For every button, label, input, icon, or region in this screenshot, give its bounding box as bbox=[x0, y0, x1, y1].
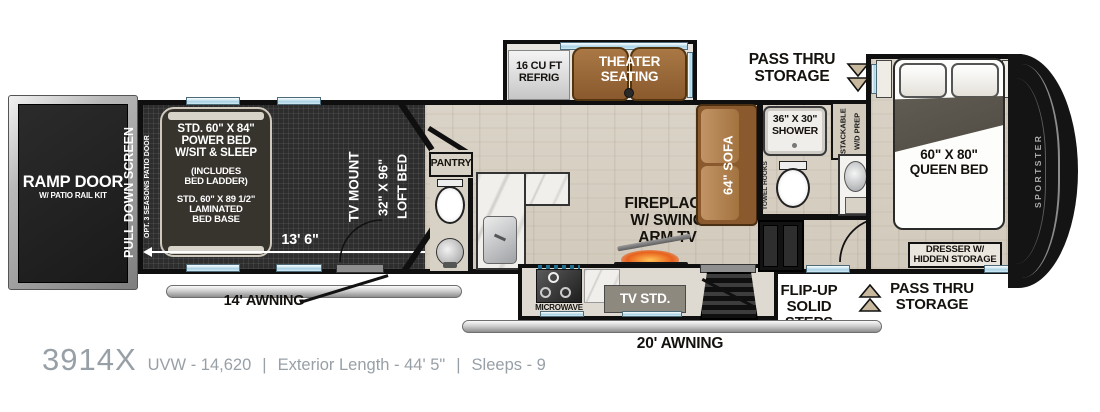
pass-thru-up-arrow-icon bbox=[858, 284, 882, 314]
interior-step-1 bbox=[763, 225, 778, 267]
main-entry-door bbox=[700, 264, 756, 273]
refrig-label-line2: REFRIG bbox=[508, 73, 570, 84]
ramp-door-sublabel: W/ PATIO RAIL KIT bbox=[15, 192, 131, 200]
bath-vanity-sink bbox=[844, 161, 867, 192]
shower-label-line1: 36" X 30" bbox=[763, 114, 827, 125]
stove-burner-2 bbox=[540, 287, 551, 298]
pantry-label: PANTRY bbox=[429, 158, 473, 169]
garage-window-top-1 bbox=[186, 97, 240, 105]
spec-uvw: UVW - 14,620 bbox=[148, 356, 252, 375]
floorplan-3914x: RAMP DOOR W/ PATIO RAIL KIT PULL DOWN SC… bbox=[0, 0, 1100, 412]
queen-pillow-right bbox=[951, 63, 999, 98]
queen-label-line1: 60" X 80" bbox=[893, 148, 1005, 162]
spec-divider-2: | bbox=[456, 356, 460, 375]
half-bath-right-wall bbox=[468, 178, 473, 271]
garage-dimension-label: 13' 6" bbox=[250, 233, 350, 248]
stove-burner-3 bbox=[560, 287, 571, 298]
bedroom-window-left bbox=[871, 64, 877, 94]
towel-hooks-label: TOWEL HOOKS bbox=[760, 156, 771, 216]
kitchen-counter-ext bbox=[526, 172, 570, 206]
spec-length: Exterior Length - 44' 5" bbox=[278, 356, 446, 375]
pull-down-screen-label: PULL DOWN SCREEN bbox=[120, 96, 138, 288]
nightstand-left bbox=[876, 60, 892, 98]
queen-pillow-left bbox=[899, 63, 947, 98]
ramp-door: RAMP DOOR W/ PATIO RAIL KIT bbox=[8, 95, 138, 290]
stove-knobs bbox=[538, 265, 580, 269]
model-number: 3914X bbox=[42, 342, 137, 378]
pass-thru-top-line2: STORAGE bbox=[742, 69, 842, 85]
stove-burner-1 bbox=[548, 272, 559, 283]
interior-step-2 bbox=[783, 225, 798, 267]
flip-up-steps-graphic bbox=[700, 272, 758, 320]
front-cap: SPORTSTER bbox=[1008, 54, 1078, 288]
pass-thru-bottom-line2: STORAGE bbox=[884, 297, 980, 313]
half-bath-sink-faucet bbox=[443, 262, 457, 268]
garage-window-bottom-2 bbox=[276, 264, 322, 272]
spec-divider-1: | bbox=[262, 356, 266, 375]
tv-stand-label: TV STD. bbox=[604, 292, 686, 306]
bath-toilet bbox=[776, 168, 810, 208]
kitchen-slide-window-1 bbox=[540, 311, 584, 317]
flip-up-label-line1: FLIP-UP bbox=[762, 283, 856, 299]
power-bed-line8: BED BASE bbox=[162, 215, 270, 225]
sofa-label: 64" SOFA bbox=[718, 108, 738, 222]
kitchen-sink bbox=[483, 216, 517, 264]
garage-door-swing-arc bbox=[338, 218, 384, 264]
theater-cupholder bbox=[624, 88, 634, 98]
theater-side-window bbox=[687, 52, 693, 98]
main-window-bottom bbox=[806, 265, 850, 273]
queen-label-line2: QUEEN BED bbox=[893, 163, 1005, 177]
garage-window-top-2 bbox=[277, 97, 321, 105]
shower-label-line2: SHOWER bbox=[763, 126, 827, 137]
pass-thru-top-line1: PASS THRU bbox=[742, 52, 842, 68]
stove bbox=[536, 269, 582, 303]
front-cap-brand: SPORTSTER bbox=[1030, 70, 1046, 272]
garage-dimension-arrow-left bbox=[143, 247, 152, 257]
model-info-row: 3914X UVW - 14,620 | Exterior Length - 4… bbox=[42, 342, 662, 382]
wd-prep-label-line1: STACKABLE bbox=[836, 104, 850, 158]
theater-label-line1: THEATER bbox=[572, 55, 687, 69]
spec-sleeps: Sleeps - 9 bbox=[472, 356, 546, 375]
loft-bed-label: LOFT BED bbox=[393, 112, 411, 262]
garage-entry-door bbox=[336, 264, 384, 273]
power-bed-headboard bbox=[168, 112, 264, 120]
dresser-label-line2: HIDDEN STORAGE bbox=[908, 255, 1002, 265]
power-bed-line3: W/SIT & SLEEP bbox=[162, 148, 270, 160]
awning-20-bar bbox=[462, 320, 882, 333]
wd-prep-label-line2: W/D PREP bbox=[850, 104, 864, 158]
kitchen-slide-window-2 bbox=[622, 311, 682, 317]
power-bed-line5: BED LADDER) bbox=[162, 177, 270, 187]
half-bath-toilet bbox=[435, 186, 465, 224]
shower-drain bbox=[792, 143, 797, 148]
garage-window-bottom-1 bbox=[186, 264, 240, 272]
refrig-label-line1: 16 CU FT bbox=[508, 61, 570, 72]
pass-thru-bottom-line1: PASS THRU bbox=[884, 281, 980, 297]
theater-label-line2: SEATING bbox=[572, 70, 687, 84]
garage-dimension-line bbox=[150, 251, 452, 253]
ramp-door-label: RAMP DOOR bbox=[15, 174, 131, 191]
